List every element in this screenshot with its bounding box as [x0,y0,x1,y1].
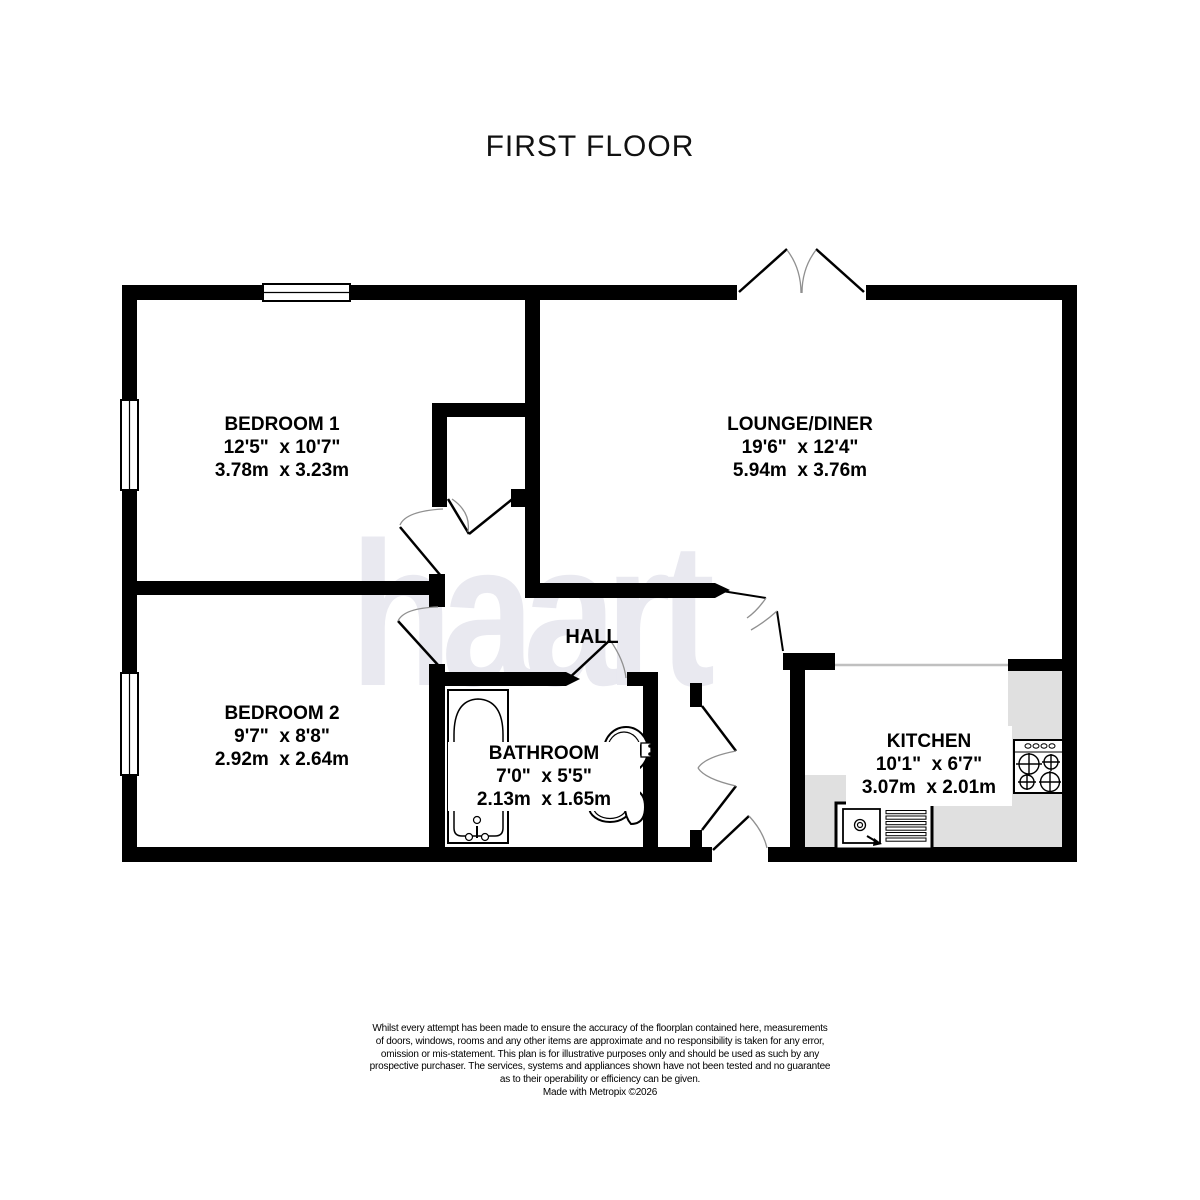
disclaimer-line: as to their operability or efficiency ca… [300,1074,900,1087]
sink-icon [836,803,932,849]
metropix-credit: Made with Metropix ©2026 [300,1087,900,1100]
room-name: KITCHEN [846,730,1012,753]
room-label-lounge-diner: LOUNGE/DINER 19'6" x 12'4" 5.94m x 3.76m [650,413,950,482]
door-icon-hall-top [448,497,515,534]
disclaimer-line: Whilst every attempt has been made to en… [300,1023,900,1036]
disclaimer-line: omission or mis-statement. This plan is … [300,1049,900,1062]
door-icon-cupboard [698,706,736,830]
disclaimer-line: prospective purchaser. The services, sys… [300,1061,900,1074]
room-dims-imperial: 7'0" x 5'5" [448,765,640,788]
room-label-kitchen: KITCHEN 10'1" x 6'7" 3.07m x 2.01m [846,726,1012,806]
disclaimer-line: of doors, windows, rooms and any other i… [300,1036,900,1049]
room-name: HALL [542,626,642,649]
room-dims-imperial: 9'7" x 8'8" [132,725,432,748]
room-dims-metric: 3.07m x 2.01m [846,776,1012,799]
room-dims-imperial: 12'5" x 10'7" [132,436,432,459]
room-dims-metric: 5.94m x 3.76m [650,459,950,482]
door-icon-bedroom1 [400,509,443,576]
door-icon-bedroom2 [398,607,438,665]
hob-icon [1014,740,1063,793]
room-label-bathroom: BATHROOM 7'0" x 5'5" 2.13m x 1.65m [448,742,640,811]
room-name: BEDROOM 1 [132,413,432,436]
room-name: BEDROOM 2 [132,702,432,725]
door-icon-hall-lounge [722,591,783,651]
door-icon-entrance [713,816,767,850]
disclaimer-text: Whilst every attempt has been made to en… [300,1023,900,1100]
room-dims-imperial: 10'1" x 6'7" [846,753,1012,776]
floorplan-drawing [0,0,1200,1200]
room-label-bedroom2: BEDROOM 2 9'7" x 8'8" 2.92m x 2.64m [132,702,432,771]
room-dims-metric: 3.78m x 3.23m [132,459,432,482]
window-icon-bedroom1-top [263,284,350,301]
room-name: LOUNGE/DINER [650,413,950,436]
page-title: FIRST FLOOR [390,130,790,164]
room-name: BATHROOM [448,742,640,765]
room-label-hall: HALL [542,626,642,649]
room-dims-metric: 2.13m x 1.65m [448,788,640,811]
room-dims-imperial: 19'6" x 12'4" [650,436,950,459]
french-doors-icon [739,249,864,293]
room-label-bedroom1: BEDROOM 1 12'5" x 10'7" 3.78m x 3.23m [132,413,432,482]
room-dims-metric: 2.92m x 2.64m [132,748,432,771]
floorplan-page: FIRST FLOOR haart [0,0,1200,1200]
